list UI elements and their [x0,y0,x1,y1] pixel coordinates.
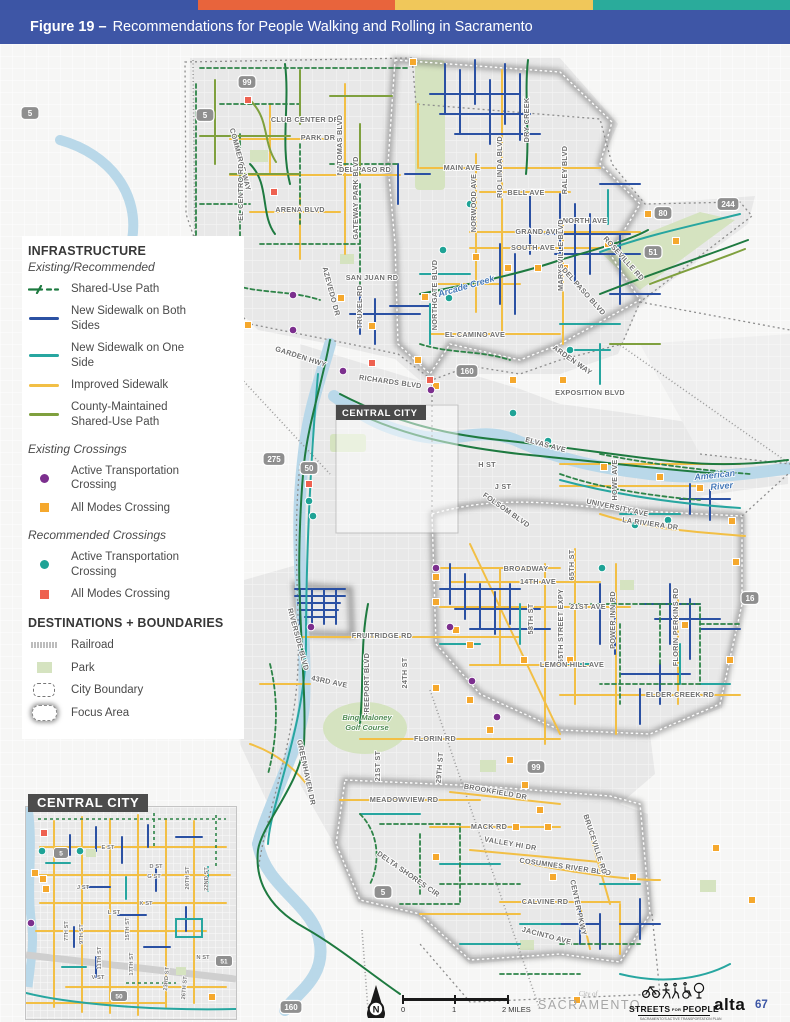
road-label: MACK RD [471,822,507,831]
shield-275: 275 [263,453,285,466]
svg-text:CENTRAL CITY: CENTRAL CITY [342,408,418,419]
recommended-active-crossing-icon [28,560,60,569]
shield-51: 51 [644,246,662,259]
svg-text:N: N [373,1005,380,1016]
new-sidewalk-both-swatch [28,317,60,320]
shield-244: 244 [717,198,739,211]
road-label: J ST [495,482,512,491]
sacramento-logo-name: SACRAMENTO [538,998,638,1012]
svg-text:V ST: V ST [92,975,105,981]
legend-item-improved-sidewalk: Improved Sidewalk [28,378,244,392]
legend-item-label: Railroad [71,638,114,652]
existing-allmodes-crossing-icon [28,503,60,512]
road-label: 65TH ST [567,549,576,580]
road-label: NORWOOD AVE [469,174,478,233]
svg-text:160: 160 [460,367,474,376]
road-label: FLORIN RD [414,734,456,743]
road-label: EL CAMINO AVE [445,330,505,339]
road-label: MEADOWVIEW RD [370,795,439,804]
legend-item-label: All Modes Crossing [71,501,170,515]
shield-5-south: 5 [374,886,392,899]
shield-5-north: 5 [196,109,214,122]
road-label: SOUTH AVE [511,243,555,252]
svg-text:99: 99 [243,78,252,87]
sp-word-for: FOR [672,1007,681,1012]
top-color-stripe [0,0,790,10]
svg-text:5: 5 [381,888,386,897]
svg-text:E ST: E ST [102,845,115,851]
map-legend: INFRASTRUCTURE Existing/Recommended Shar… [22,236,244,739]
svg-text:5: 5 [203,111,208,120]
legend-item-park: Park [28,661,244,675]
legend-item-recommended-active: Active Transportation Crossing [28,550,244,579]
svg-text:51: 51 [220,959,228,966]
sp-tagline: SACRAMENTO'S ACTIVE TRANSPORTATION PLAN [640,1017,708,1021]
legend-item-label: Improved Sidewalk [71,378,168,392]
railroad-swatch [28,641,60,649]
road-label: HOWE AVE [610,460,619,501]
sacramento-logo: City of SACRAMENTO [538,990,638,1012]
legend-item-county-path: County-Maintained Shared-Use Path [28,400,244,429]
legend-item-existing-active: Active Transportation Crossing [28,464,244,493]
road-label: H ST [478,460,496,469]
figure-title: Recommendations for People Walking and R… [113,19,533,35]
figure-label: Figure 19 – [30,19,107,35]
road-label: EL CENTRO RD [236,163,245,221]
road-label: SAN JUAN RD [346,273,399,282]
legend-item-recommended-allmodes: All Modes Crossing [28,587,244,601]
legend-item-label: Shared-Use Path [71,282,159,296]
svg-text:5: 5 [28,109,33,118]
legend-item-focus-area: Focus Area [28,705,244,721]
north-arrow-icon: N [364,984,388,1022]
road-label: GATEWAY PARK BLVD [351,156,360,239]
stripe-orange [198,0,396,10]
road-label: 65TH STREET EXPY [556,589,565,663]
legend-item-label: Focus Area [71,706,129,720]
svg-text:17TH ST: 17TH ST [129,952,135,976]
svg-text:20TH ST: 20TH ST [185,866,191,890]
focus-area-swatch [28,705,60,721]
svg-text:11TH ST: 11TH ST [97,946,103,969]
road-label: ELDER CREEK RD [646,690,714,699]
road-label: EXPOSITION BLVD [555,388,625,397]
scale-bar: 0 1 2 MILES [402,995,514,1015]
legend-item-label: City Boundary [71,683,143,697]
legend-item-new-sidewalk-one: New Sidewalk on One Side [28,341,244,370]
scale-tick-2: 2 MILES [502,1005,531,1014]
road-label: 14TH AVE [520,577,556,586]
road-label: MAIN AVE [444,163,481,172]
shield-50: 50 [300,462,318,475]
central-city-map-label: CENTRAL CITY [336,405,426,420]
central-city-focus: CENTRAL CITY [336,405,458,533]
streets-for-people-logo: STREETS FOR PEOPLE SACRAMENTO'S ACTIVE T… [638,982,710,1021]
svg-text:G ST: G ST [147,874,161,880]
inset-map: 5 50 51 E ST D ST G ST J ST K ST L ST N … [26,807,236,1019]
inset-shield-5: 5 [54,848,69,859]
central-city-inset: 5 50 51 E ST D ST G ST J ST K ST L ST N … [25,806,237,1020]
shield-99-south: 99 [527,761,545,774]
stripe-teal [593,0,790,10]
legend-item-label: New Sidewalk on Both Sides [71,304,191,333]
road-label: CLUB CENTER DR [271,115,340,124]
stripe-blue [0,0,198,10]
poi-label: Golf Course [345,723,389,732]
new-sidewalk-one-swatch [28,354,60,357]
legend-existing-crossings-heading: Existing Crossings [28,442,244,456]
svg-text:K ST: K ST [139,901,153,907]
inset-title: CENTRAL CITY [28,794,148,812]
road-label: 21ST ST [373,750,382,781]
svg-text:15TH ST: 15TH ST [125,917,131,941]
scale-tick-1: 1 [452,1005,456,1014]
legend-item-label: Active Transportation Crossing [71,550,201,579]
sp-word-streets: STREETS [629,1004,670,1014]
svg-text:99: 99 [532,763,541,772]
legend-item-label: Park [71,661,95,675]
legend-item-label: All Modes Crossing [71,587,170,601]
park-swatch [28,662,60,673]
road-label: NORTH AVE [563,216,607,225]
legend-item-label: County-Maintained Shared-Use Path [71,400,201,429]
improved-sidewalk-swatch [28,384,60,387]
city-boundary-swatch [28,683,60,697]
svg-text:51: 51 [649,248,658,257]
svg-text:D ST: D ST [149,864,163,870]
streets-people-icons [641,982,707,999]
figure-header: Figure 19 – Recommendations for People W… [0,10,790,44]
shield-160-north: 160 [456,365,478,378]
svg-text:9TH ST: 9TH ST [79,924,85,944]
county-path-swatch [28,413,60,416]
svg-text:7TH ST: 7TH ST [64,921,70,941]
legend-destinations-heading: DESTINATIONS + BOUNDARIES [28,616,244,630]
legend-infrastructure-subheading: Existing/Recommended [28,260,244,274]
road-label: DEL PASO RD [339,165,391,174]
road-label: FRUITRIDGE RD [352,631,412,640]
svg-text:16: 16 [746,594,755,603]
legend-item-existing-allmodes: All Modes Crossing [28,501,244,515]
road-label: LEMON HILL AVE [540,660,604,669]
shield-80: 80 [654,207,672,220]
legend-infrastructure-heading: INFRASTRUCTURE [28,244,244,258]
svg-text:N ST: N ST [196,955,210,961]
road-label: 21ST AVE [570,602,606,611]
figure-page: Figure 19 – Recommendations for People W… [0,0,790,1022]
inset-shield-50: 50 [111,991,128,1002]
road-label: POWER INN RD [608,591,617,649]
existing-active-crossing-icon [28,474,60,483]
legend-item-new-sidewalk-both: New Sidewalk on Both Sides [28,304,244,333]
shield-16: 16 [741,592,759,605]
svg-text:160: 160 [284,1003,298,1012]
road-label: PARK DR [301,133,336,142]
svg-text:50: 50 [115,994,123,1001]
svg-text:80: 80 [659,209,668,218]
road-label: CALVINE RD [522,897,569,906]
stripe-yellow [395,0,593,10]
shield-99-north: 99 [238,76,256,89]
shield-160-south: 160 [280,1001,302,1014]
alta-logo: alta [714,995,745,1015]
road-label: 24TH ST [400,657,409,688]
road-label: 58TH ST [526,603,535,634]
svg-text:50: 50 [305,464,314,473]
inset-shield-51: 51 [216,956,233,967]
legend-item-label: Active Transportation Crossing [71,464,201,493]
svg-text:L ST: L ST [108,910,121,916]
road-label: MARYSVILLE BLVD [556,219,565,291]
legend-item-label: New Sidewalk on One Side [71,341,191,370]
poi-label: Bing Maloney [342,713,392,722]
shield-5-west: 5 [21,107,39,120]
road-label: RIO LINDA BLVD [495,136,504,198]
recommended-allmodes-crossing-icon [28,590,60,599]
road-label: DRY CREEK [522,97,531,142]
shared-use-path-swatch [28,285,60,294]
svg-text:22ND ST: 22ND ST [204,867,210,891]
road-label: GRAND AVE [515,227,560,236]
road-label: RALEY BLVD [560,146,569,194]
svg-text:244: 244 [721,200,735,209]
svg-text:275: 275 [267,455,281,464]
svg-text:J ST: J ST [77,885,90,891]
road-label: FLORIN PERKINS RD [671,588,680,666]
road-label: FREEPORT BLVD [362,653,371,717]
legend-item-shared-use-path: Shared-Use Path [28,282,244,296]
page-number: 67 [755,999,768,1011]
sacramento-logo-pre: City of [538,990,638,998]
svg-text:5: 5 [59,851,63,858]
scale-tick-0: 0 [401,1005,405,1014]
legend-item-city-boundary: City Boundary [28,683,244,697]
road-label: BROADWAY [504,564,549,573]
road-label: BELL AVE [507,188,544,197]
road-label: ARENA BLVD [275,205,325,214]
road-label: TRUXEL RD [355,285,364,329]
legend-item-railroad: Railroad [28,638,244,652]
legend-recommended-crossings-heading: Recommended Crossings [28,528,244,542]
